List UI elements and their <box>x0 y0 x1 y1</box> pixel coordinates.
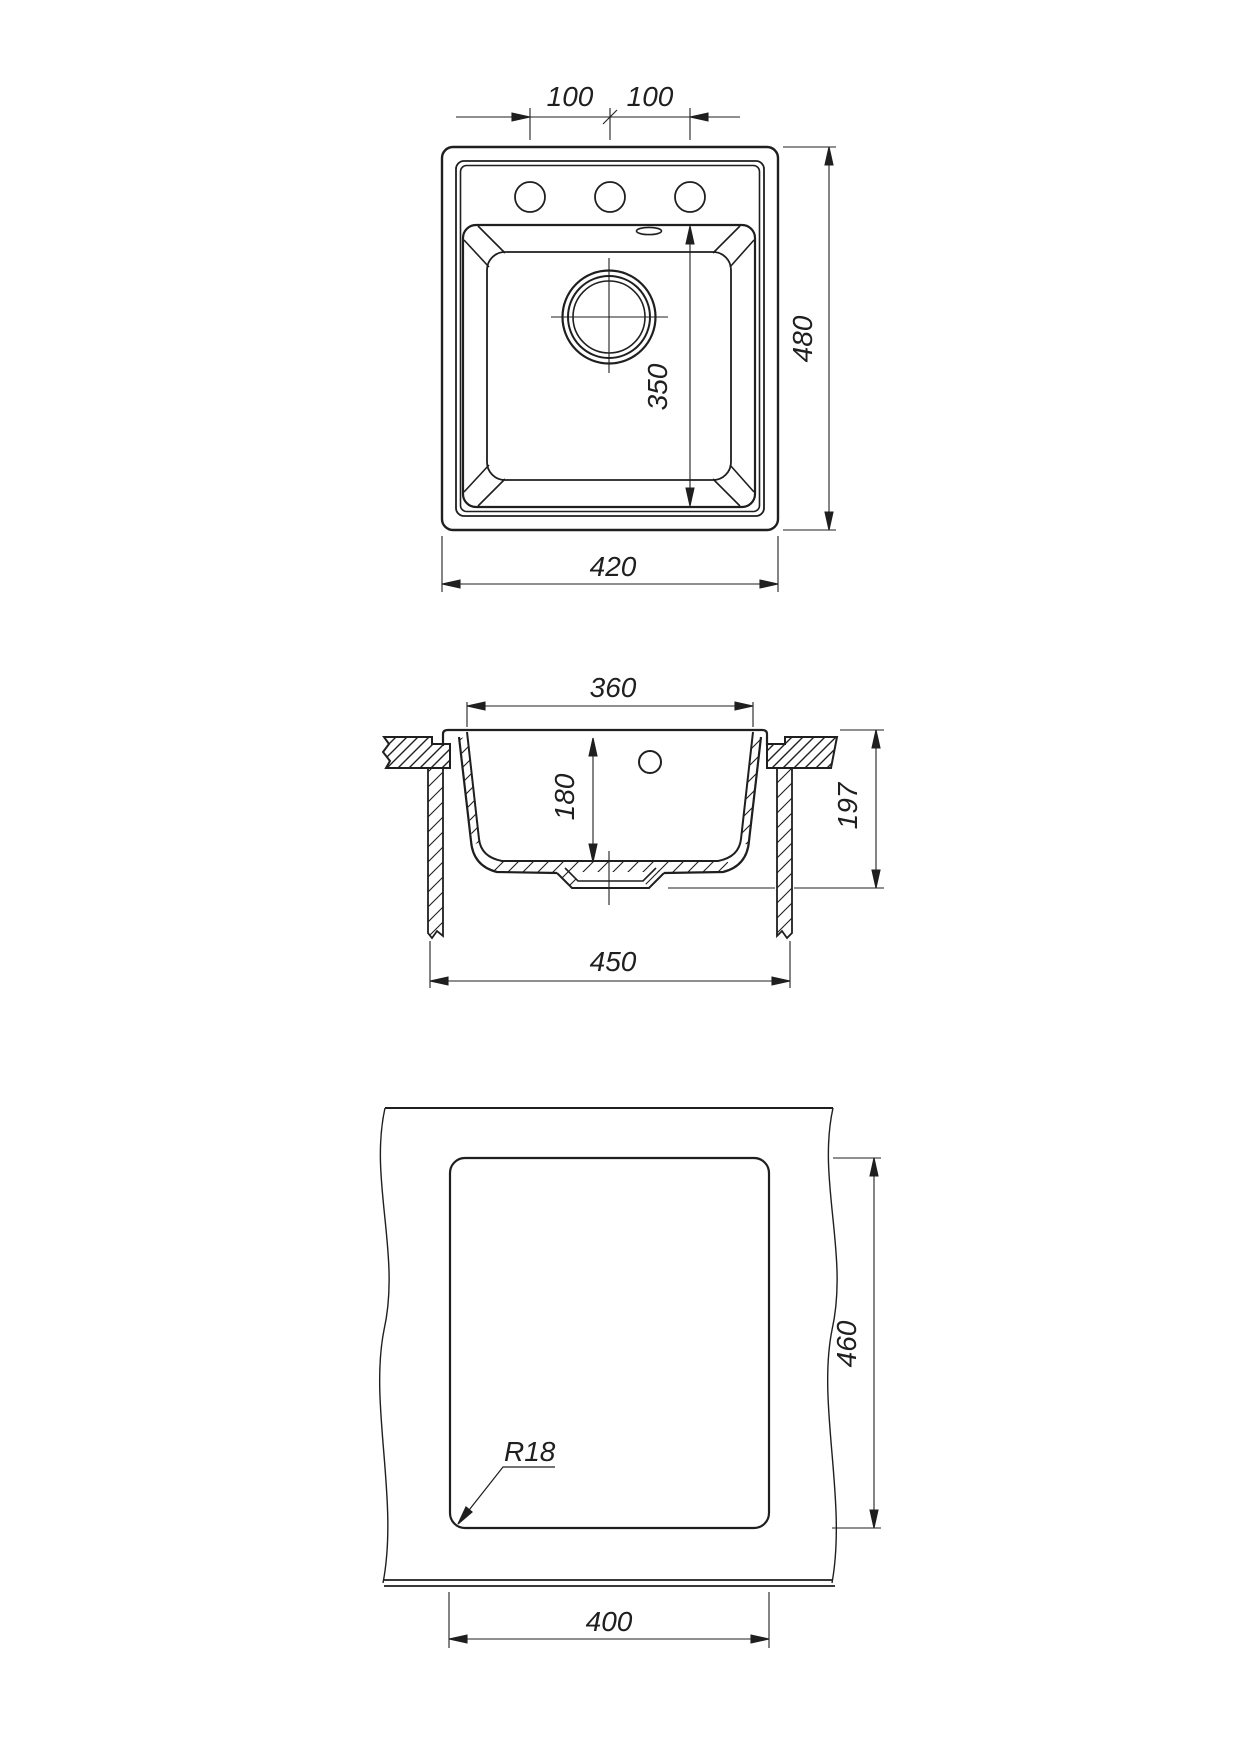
top-view: 100 100 480 350 420 <box>442 81 836 592</box>
technical-drawing: 100 100 480 350 420 <box>0 0 1241 1754</box>
counter-slab-left <box>383 737 450 768</box>
cabinet-wall-right <box>777 768 792 938</box>
dim-label-480: 480 <box>787 315 818 362</box>
drain <box>551 258 668 373</box>
radius-callout <box>458 1467 555 1524</box>
dim-label-180: 180 <box>549 773 580 820</box>
faucet-hole-left <box>515 182 545 212</box>
faucet-hole-center <box>595 182 625 212</box>
overflow-section <box>639 751 661 773</box>
dim-bowl-inner-depth <box>589 738 597 862</box>
dim-label-450: 450 <box>590 946 637 977</box>
dim-label-100-right: 100 <box>627 81 674 112</box>
overflow-slot <box>637 227 662 234</box>
dim-label-460: 460 <box>831 1320 862 1367</box>
panel-left-break <box>380 1108 389 1583</box>
bowl-bottom-hatch <box>492 862 728 872</box>
dim-label-420: 420 <box>590 551 637 582</box>
cabinet-wall-left <box>428 768 443 938</box>
dim-label-400: 400 <box>586 1606 633 1637</box>
section-view: 360 180 197 450 <box>383 672 884 988</box>
drawing-page: 100 100 480 350 420 <box>0 0 1241 1754</box>
cutout-view: R18 460 400 <box>380 1108 881 1648</box>
dim-bowl-top-width <box>467 702 753 727</box>
dim-label-100-left: 100 <box>547 81 594 112</box>
cutout-outline <box>450 1158 769 1528</box>
sink-rim-section <box>443 730 767 746</box>
dim-bowl-length <box>686 226 694 506</box>
bowl-outer-wall <box>459 737 761 873</box>
dim-label-360: 360 <box>590 672 637 703</box>
dim-label-r18: R18 <box>504 1436 556 1467</box>
bowl-inner-wall <box>467 732 753 861</box>
counter-slab-right <box>767 737 837 768</box>
sink-rim-line-2 <box>461 166 760 512</box>
panel-bottom-edge <box>383 1580 835 1586</box>
dim-hole-pitch <box>456 108 740 140</box>
faucet-hole-right <box>675 182 705 212</box>
dim-label-197: 197 <box>832 781 863 829</box>
sink-rim-line-1 <box>456 161 764 516</box>
dim-label-350: 350 <box>642 363 673 410</box>
